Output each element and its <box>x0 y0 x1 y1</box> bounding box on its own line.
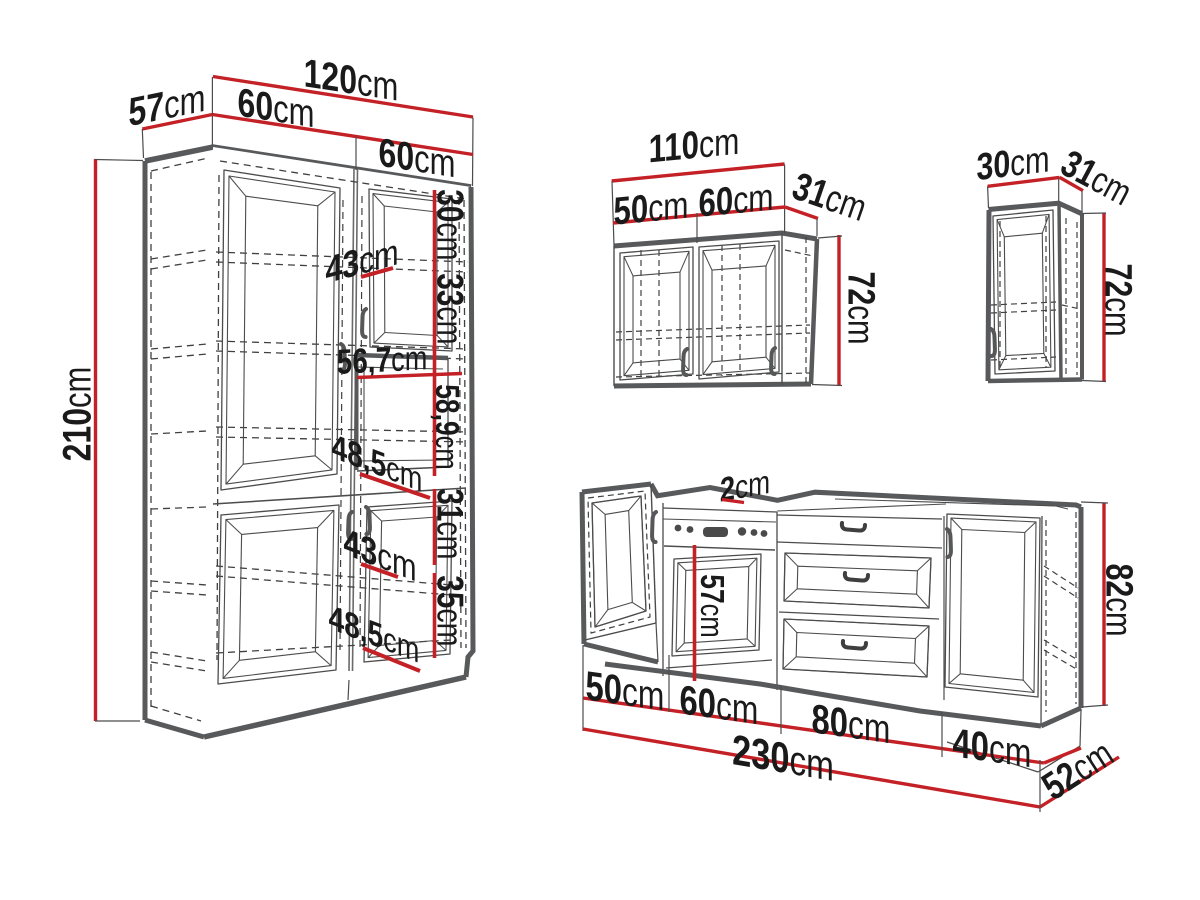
svg-text:35cm: 35cm <box>429 575 470 646</box>
svg-text:72cm: 72cm <box>1096 263 1138 336</box>
svg-text:50cm: 50cm <box>613 183 688 233</box>
svg-text:82cm: 82cm <box>1097 563 1139 636</box>
svg-text:33cm: 33cm <box>429 273 470 344</box>
svg-text:31cm: 31cm <box>429 488 470 559</box>
svg-text:58,9cm: 58,9cm <box>428 384 464 470</box>
svg-text:72cm: 72cm <box>839 271 881 344</box>
svg-text:30cm: 30cm <box>976 138 1049 189</box>
svg-text:110cm: 110cm <box>649 119 740 171</box>
svg-text:57cm: 57cm <box>693 574 729 637</box>
svg-text:210cm: 210cm <box>54 367 99 462</box>
svg-text:30cm: 30cm <box>429 189 470 260</box>
svg-text:60cm: 60cm <box>698 175 773 225</box>
